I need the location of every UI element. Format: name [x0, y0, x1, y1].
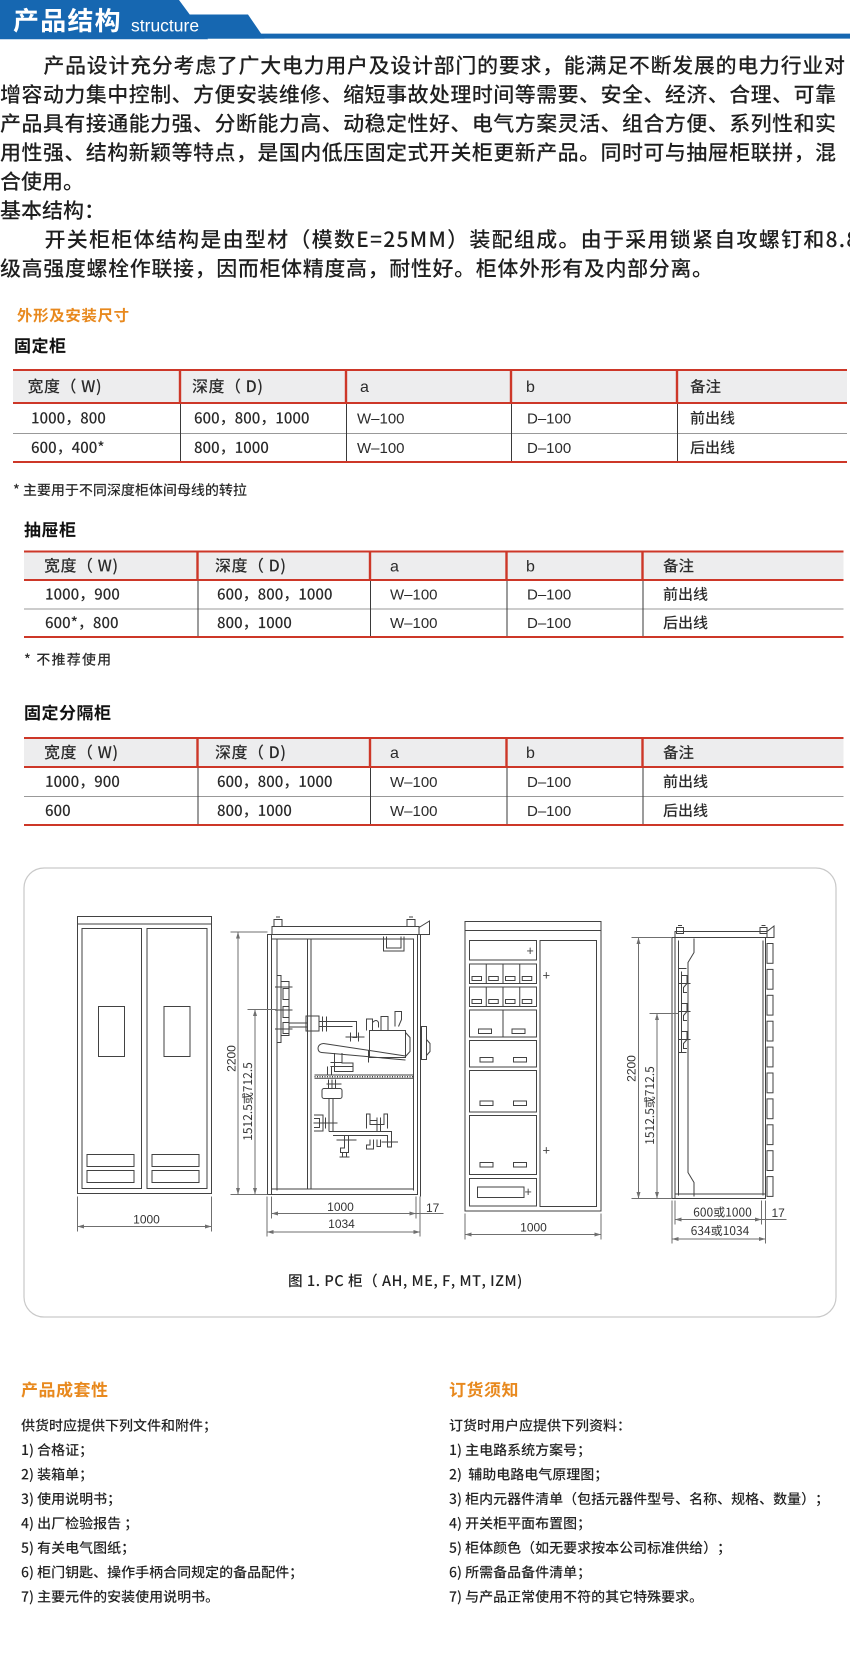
- svg-text:2200: 2200: [625, 1055, 639, 1082]
- svg-text:b: b: [526, 558, 535, 575]
- svg-text:1000: 1000: [327, 1200, 354, 1214]
- svg-text:a: a: [390, 745, 399, 762]
- svg-text:structure: structure: [131, 16, 199, 36]
- svg-text:D–100: D–100: [527, 410, 571, 427]
- svg-text:a: a: [360, 379, 369, 396]
- svg-text:1034: 1034: [328, 1217, 355, 1231]
- svg-text:b: b: [526, 379, 535, 396]
- svg-text:D–100: D–100: [527, 803, 571, 820]
- svg-text:2200: 2200: [225, 1045, 239, 1072]
- svg-text:D–100: D–100: [527, 615, 571, 632]
- svg-text:D–100: D–100: [527, 587, 571, 604]
- svg-text:W–100: W–100: [390, 803, 438, 820]
- svg-text:W–100: W–100: [357, 440, 405, 457]
- svg-text:D–100: D–100: [527, 440, 571, 457]
- svg-text:D–100: D–100: [527, 774, 571, 791]
- svg-text:1000: 1000: [133, 1213, 160, 1227]
- svg-text:W–100: W–100: [390, 615, 438, 632]
- svg-text:+: +: [543, 1143, 551, 1158]
- svg-text:W–100: W–100: [390, 774, 438, 791]
- svg-text:+: +: [527, 944, 534, 958]
- svg-text:+: +: [525, 1185, 532, 1199]
- svg-text:W–100: W–100: [357, 410, 405, 427]
- svg-text:W–100: W–100: [390, 587, 438, 604]
- svg-text:a: a: [390, 558, 399, 575]
- svg-text:b: b: [526, 745, 535, 762]
- svg-text:17: 17: [772, 1206, 786, 1220]
- svg-text:1000: 1000: [520, 1221, 547, 1235]
- svg-text:17: 17: [426, 1201, 440, 1215]
- svg-text:+: +: [543, 968, 551, 983]
